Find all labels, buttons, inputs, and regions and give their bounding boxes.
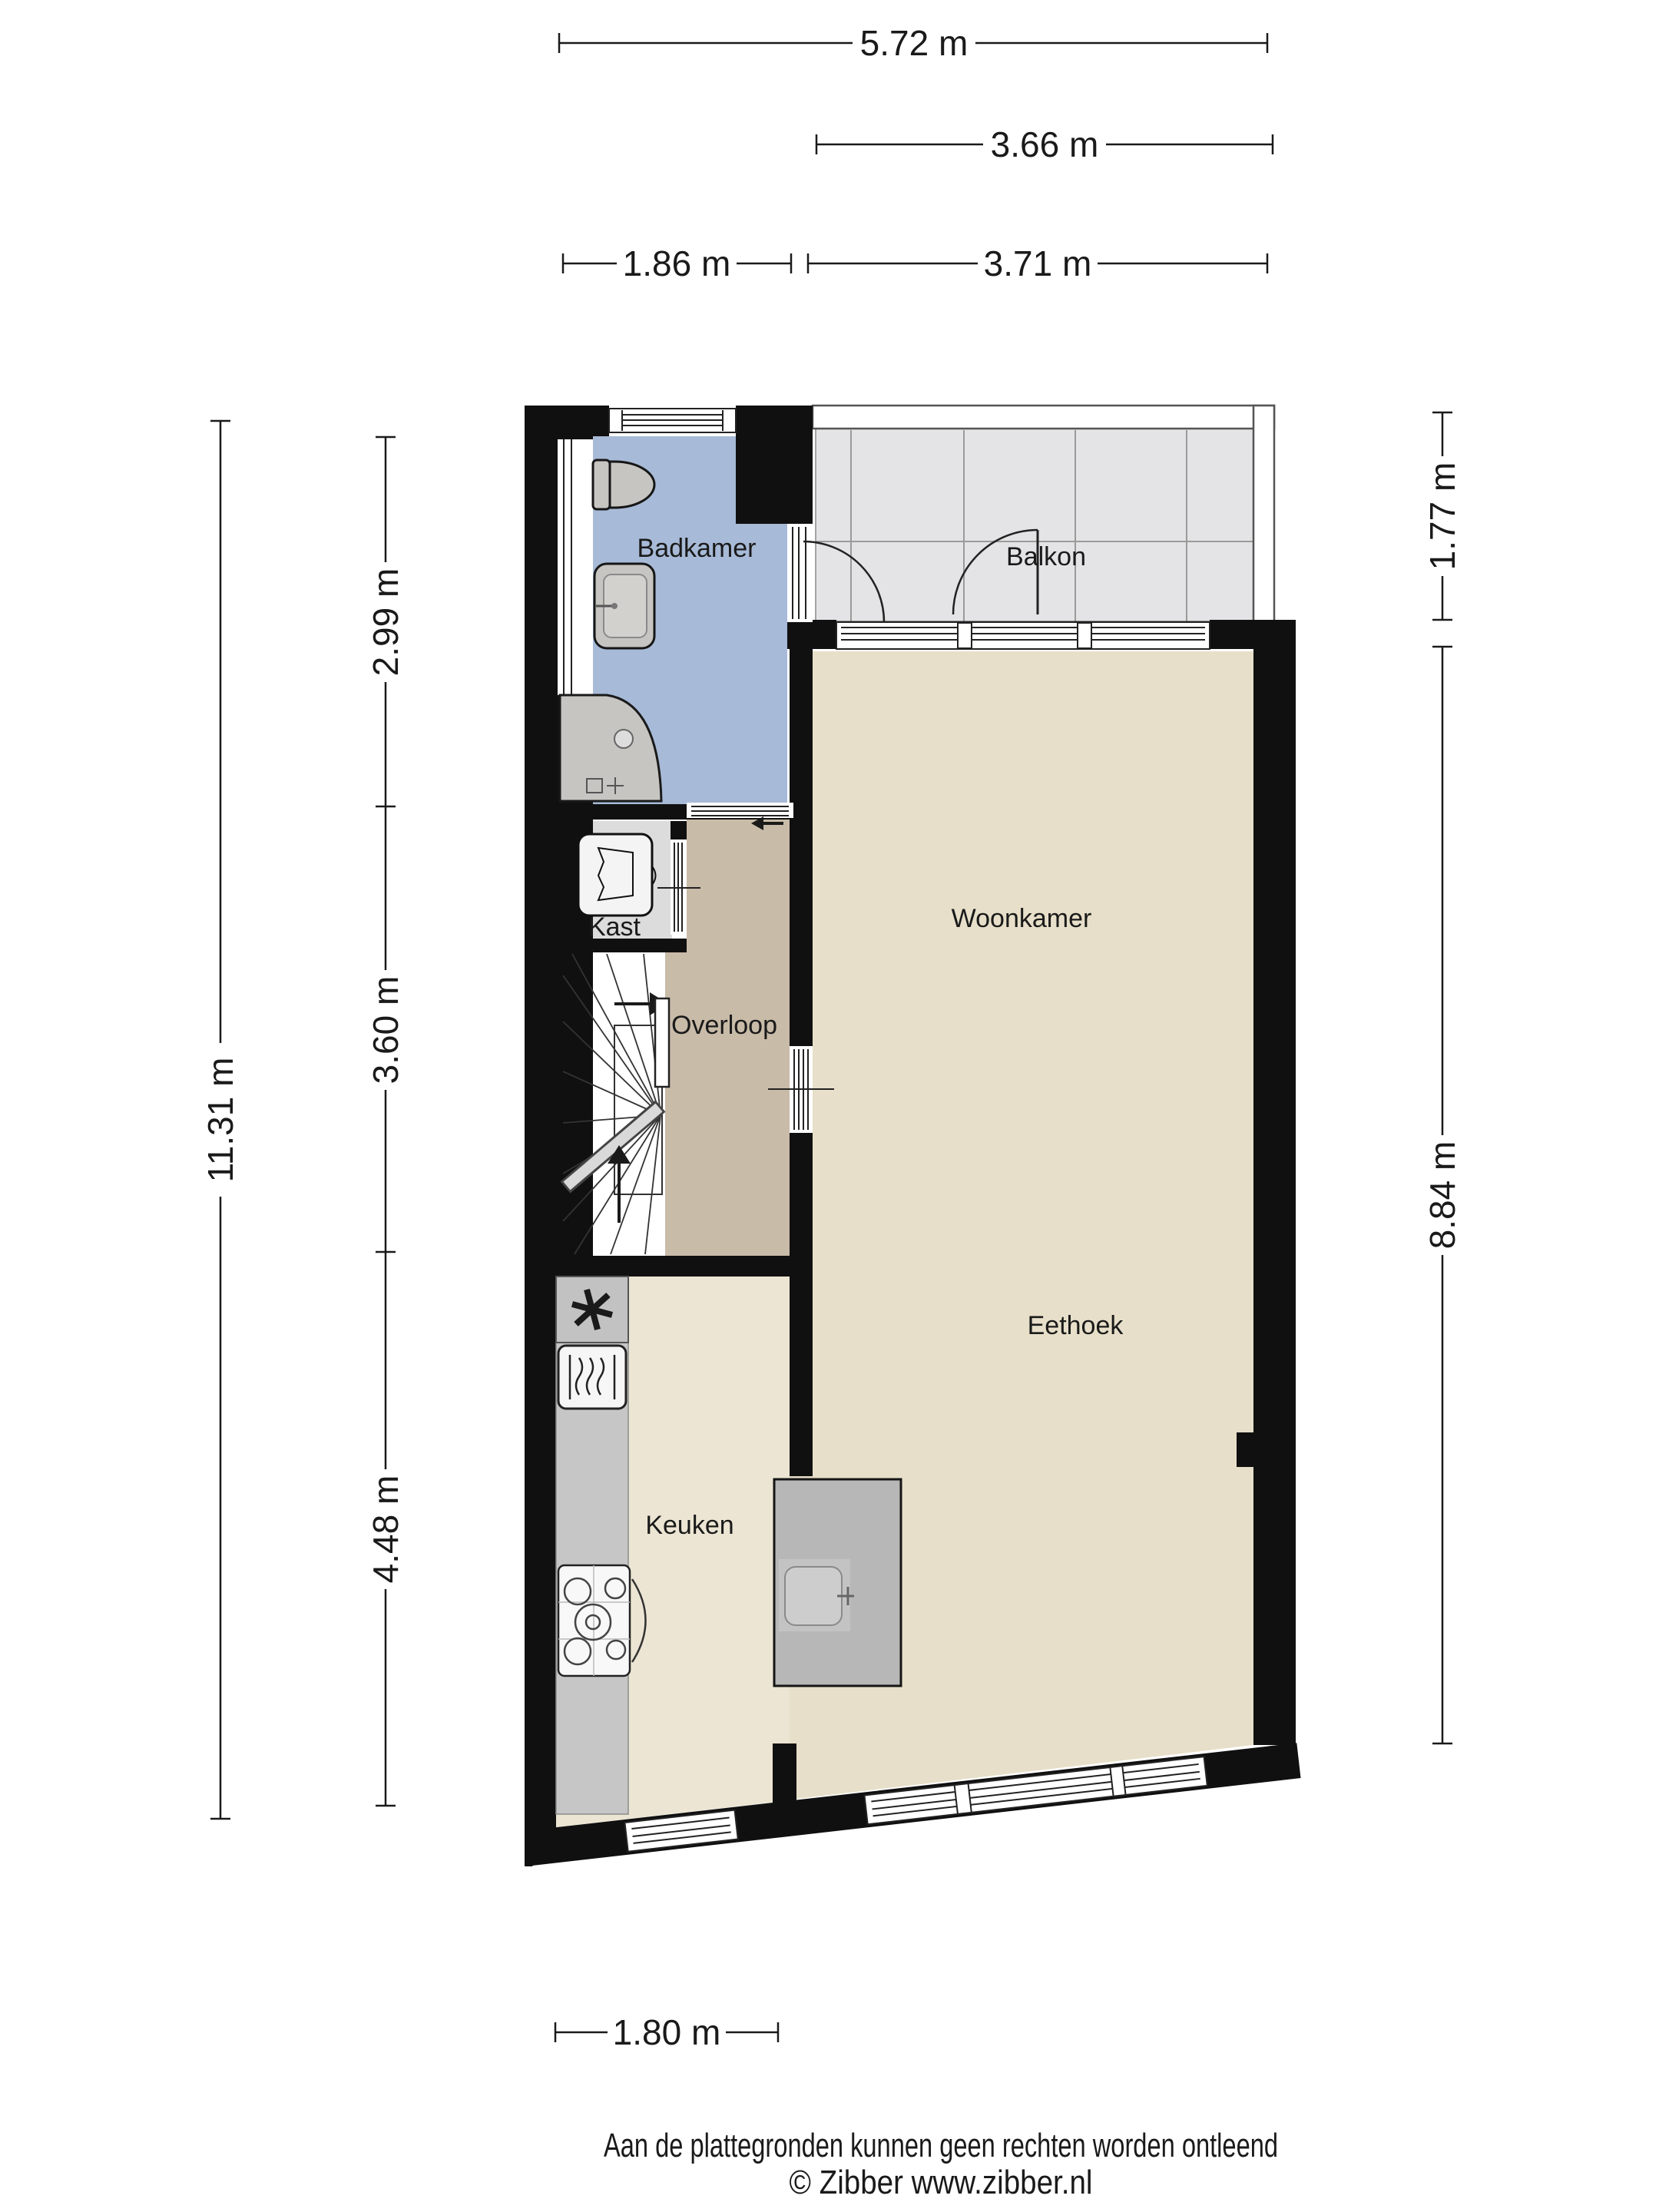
room-label-keuken: Keuken: [645, 1511, 733, 1540]
boiler-icon: [578, 834, 656, 916]
stairs-door-leaf: [655, 998, 669, 1087]
balcony-living-window: [836, 622, 1210, 649]
dim-top-total: 5.72 m: [860, 23, 969, 63]
room-label-overloop: Overloop: [671, 1011, 777, 1040]
balcony-glass-floor: [816, 429, 1253, 624]
floorplan-page: Badkamer Balkon Woonkamer Eethoek Overlo…: [0, 0, 1659, 2212]
dim-top-left: 1.86 m: [623, 243, 731, 283]
dim-left-upper: 2.99 m: [366, 568, 406, 677]
balcony: [813, 406, 1274, 626]
room-label-badkamer: Badkamer: [637, 534, 757, 563]
footer-copyright: © Zibber www.zibber.nl: [790, 2164, 1093, 2201]
fan-appliance-icon: [556, 1277, 628, 1343]
dim-right-upper: 1.77 m: [1422, 462, 1462, 571]
footer: Aan de plattegronden kunnen geen rechten…: [604, 2127, 1278, 2201]
dim-top-right: 3.71 m: [984, 243, 1092, 283]
balcony-railing-right: [1253, 406, 1274, 626]
kitchen-island: [774, 1479, 901, 1686]
room-label-woonkamer: Woonkamer: [952, 904, 1092, 933]
bathroom-left-window: [558, 439, 593, 695]
dim-left-middle: 3.60 m: [366, 976, 406, 1084]
balcony-railing-top: [813, 406, 1274, 429]
washbasin-icon: [594, 564, 654, 648]
bathroom-top-window: [609, 409, 736, 432]
room-label-kast: Kast: [588, 912, 641, 942]
floorplan-canvas: Badkamer Balkon Woonkamer Eethoek Overlo…: [0, 0, 1659, 2212]
dim-top-balcony: 3.66 m: [991, 124, 1099, 164]
room-label-balkon: Balkon: [1006, 542, 1086, 571]
footer-disclaimer: Aan de plattegronden kunnen geen rechten…: [604, 2127, 1278, 2164]
dim-left-total: 11.31 m: [200, 1058, 240, 1183]
oven-icon: [558, 1346, 626, 1409]
dim-bottom: 1.80 m: [613, 2012, 721, 2052]
room-label-eethoek: Eethoek: [1028, 1311, 1124, 1340]
landing-floor-upper: [687, 816, 790, 952]
dim-right-lower: 8.84 m: [1422, 1141, 1462, 1250]
dim-left-lower: 4.48 m: [366, 1475, 406, 1584]
bathroom-landing-window: [687, 803, 793, 818]
landing-floor-lower: [665, 952, 790, 1257]
